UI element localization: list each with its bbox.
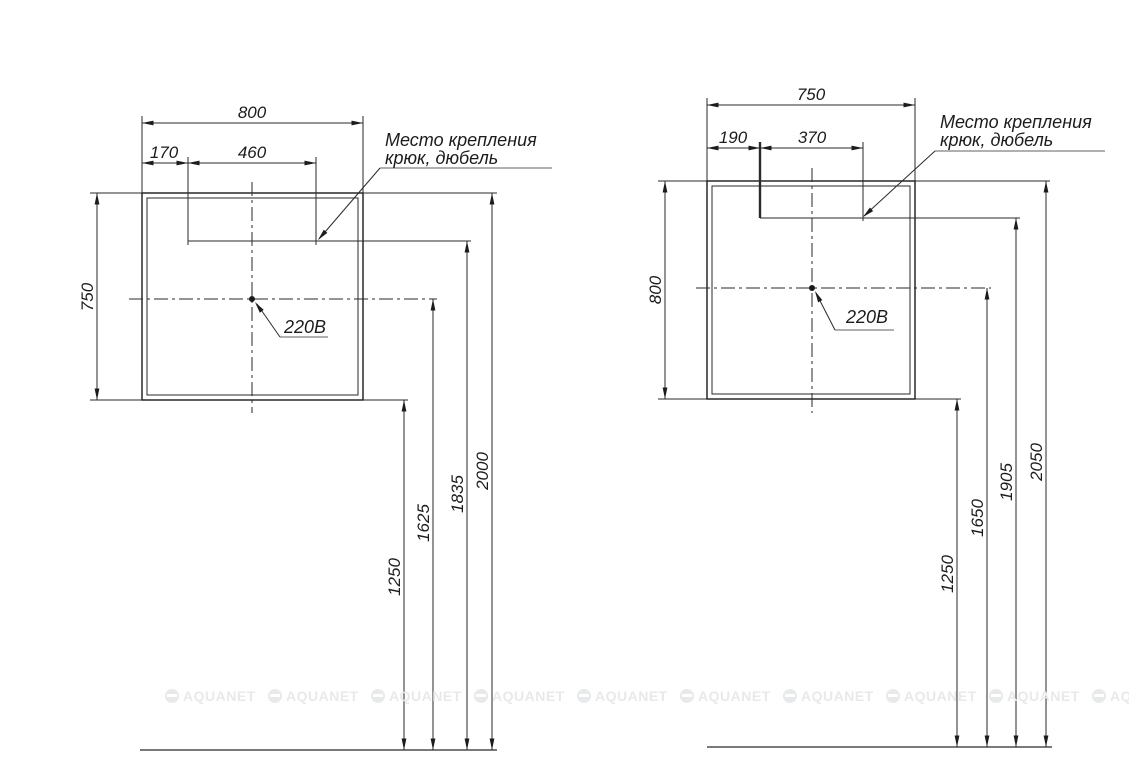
right-outlet-point [809,285,815,291]
left-centerlines [129,182,437,413]
aquanet-watermark: AQUANET [474,687,565,705]
right-height-dim-1: 1250 [938,555,957,593]
left-dim-height: 750 [78,282,97,311]
watermark-text: AQUANET [1110,688,1129,704]
drawing-canvas: AQUANET AQUANET AQUANET AQUANET AQUANET … [0,0,1129,782]
aquanet-watermark: AQUANET [268,687,359,705]
right-diagram [658,98,1105,747]
aquanet-watermark: AQUANET [371,687,462,705]
watermark-text: AQUANET [492,688,565,704]
left-dimension-lines [97,123,492,750]
right-dim-mount-span: 370 [798,128,827,147]
right-centerlines [696,168,991,413]
aquanet-watermark: AQUANET [1092,687,1129,705]
aquanet-logo-icon [989,689,1003,703]
watermark-text: AQUANET [698,688,771,704]
right-diagram-labels: 750 190 370 800 Место крепления крюк, дю… [646,85,1092,593]
aquanet-watermark: AQUANET [783,687,874,705]
right-dim-width: 750 [797,85,826,104]
left-outlet-label: 220В [283,317,326,337]
left-mount-note-line2: крюк, дюбель [385,148,498,168]
left-dim-mount-offset: 170 [150,143,179,162]
right-dim-mount-offset: 190 [719,128,748,147]
left-dim-mount-span: 460 [238,143,267,162]
left-outlet-point [249,296,255,302]
aquanet-watermark: AQUANET [577,687,668,705]
right-arrowheads [663,103,1049,747]
watermark-text: AQUANET [801,688,874,704]
aquanet-logo-icon [886,689,900,703]
installation-diagrams: 800 170 460 750 Место крепления крюк, дю… [0,0,1129,782]
left-height-dim-4: 2000 [473,452,492,491]
aquanet-watermark: AQUANET [886,687,977,705]
right-height-dim-2: 1650 [968,499,987,537]
watermark-row: AQUANET AQUANET AQUANET AQUANET AQUANET … [165,687,1129,705]
left-diagram [90,116,552,750]
aquanet-watermark: AQUANET [680,687,771,705]
left-mount-note-leader [316,168,552,242]
aquanet-logo-icon [1092,689,1106,703]
right-mount-note-leader [861,151,1105,219]
watermark-text: AQUANET [595,688,668,704]
aquanet-logo-icon [371,689,385,703]
right-outlet-label: 220В [845,307,888,327]
right-dimension-lines [665,105,1046,747]
aquanet-logo-icon [165,689,179,703]
left-height-dim-1: 1250 [385,558,404,596]
aquanet-watermark: AQUANET [989,687,1080,705]
left-height-dim-3: 1835 [448,475,467,513]
watermark-text: AQUANET [904,688,977,704]
right-mount-note-line1: Место крепления [940,112,1092,132]
aquanet-logo-icon [680,689,694,703]
watermark-text: AQUANET [286,688,359,704]
left-arrowheads [95,121,495,750]
left-height-dim-2: 1625 [414,504,433,542]
right-mount-note-line2: крюк, дюбель [940,130,1053,150]
left-dim-width: 800 [238,103,267,122]
aquanet-watermark: AQUANET [165,687,256,705]
aquanet-logo-icon [474,689,488,703]
aquanet-logo-icon [783,689,797,703]
left-mount-note-line1: Место крепления [385,130,537,150]
watermark-text: AQUANET [183,688,256,704]
watermark-text: AQUANET [389,688,462,704]
right-height-dim-4: 2050 [1027,443,1046,482]
right-dim-height: 800 [646,275,665,304]
aquanet-logo-icon [268,689,282,703]
watermark-text: AQUANET [1007,688,1080,704]
right-height-dim-3: 1905 [997,463,1016,501]
aquanet-logo-icon [577,689,591,703]
